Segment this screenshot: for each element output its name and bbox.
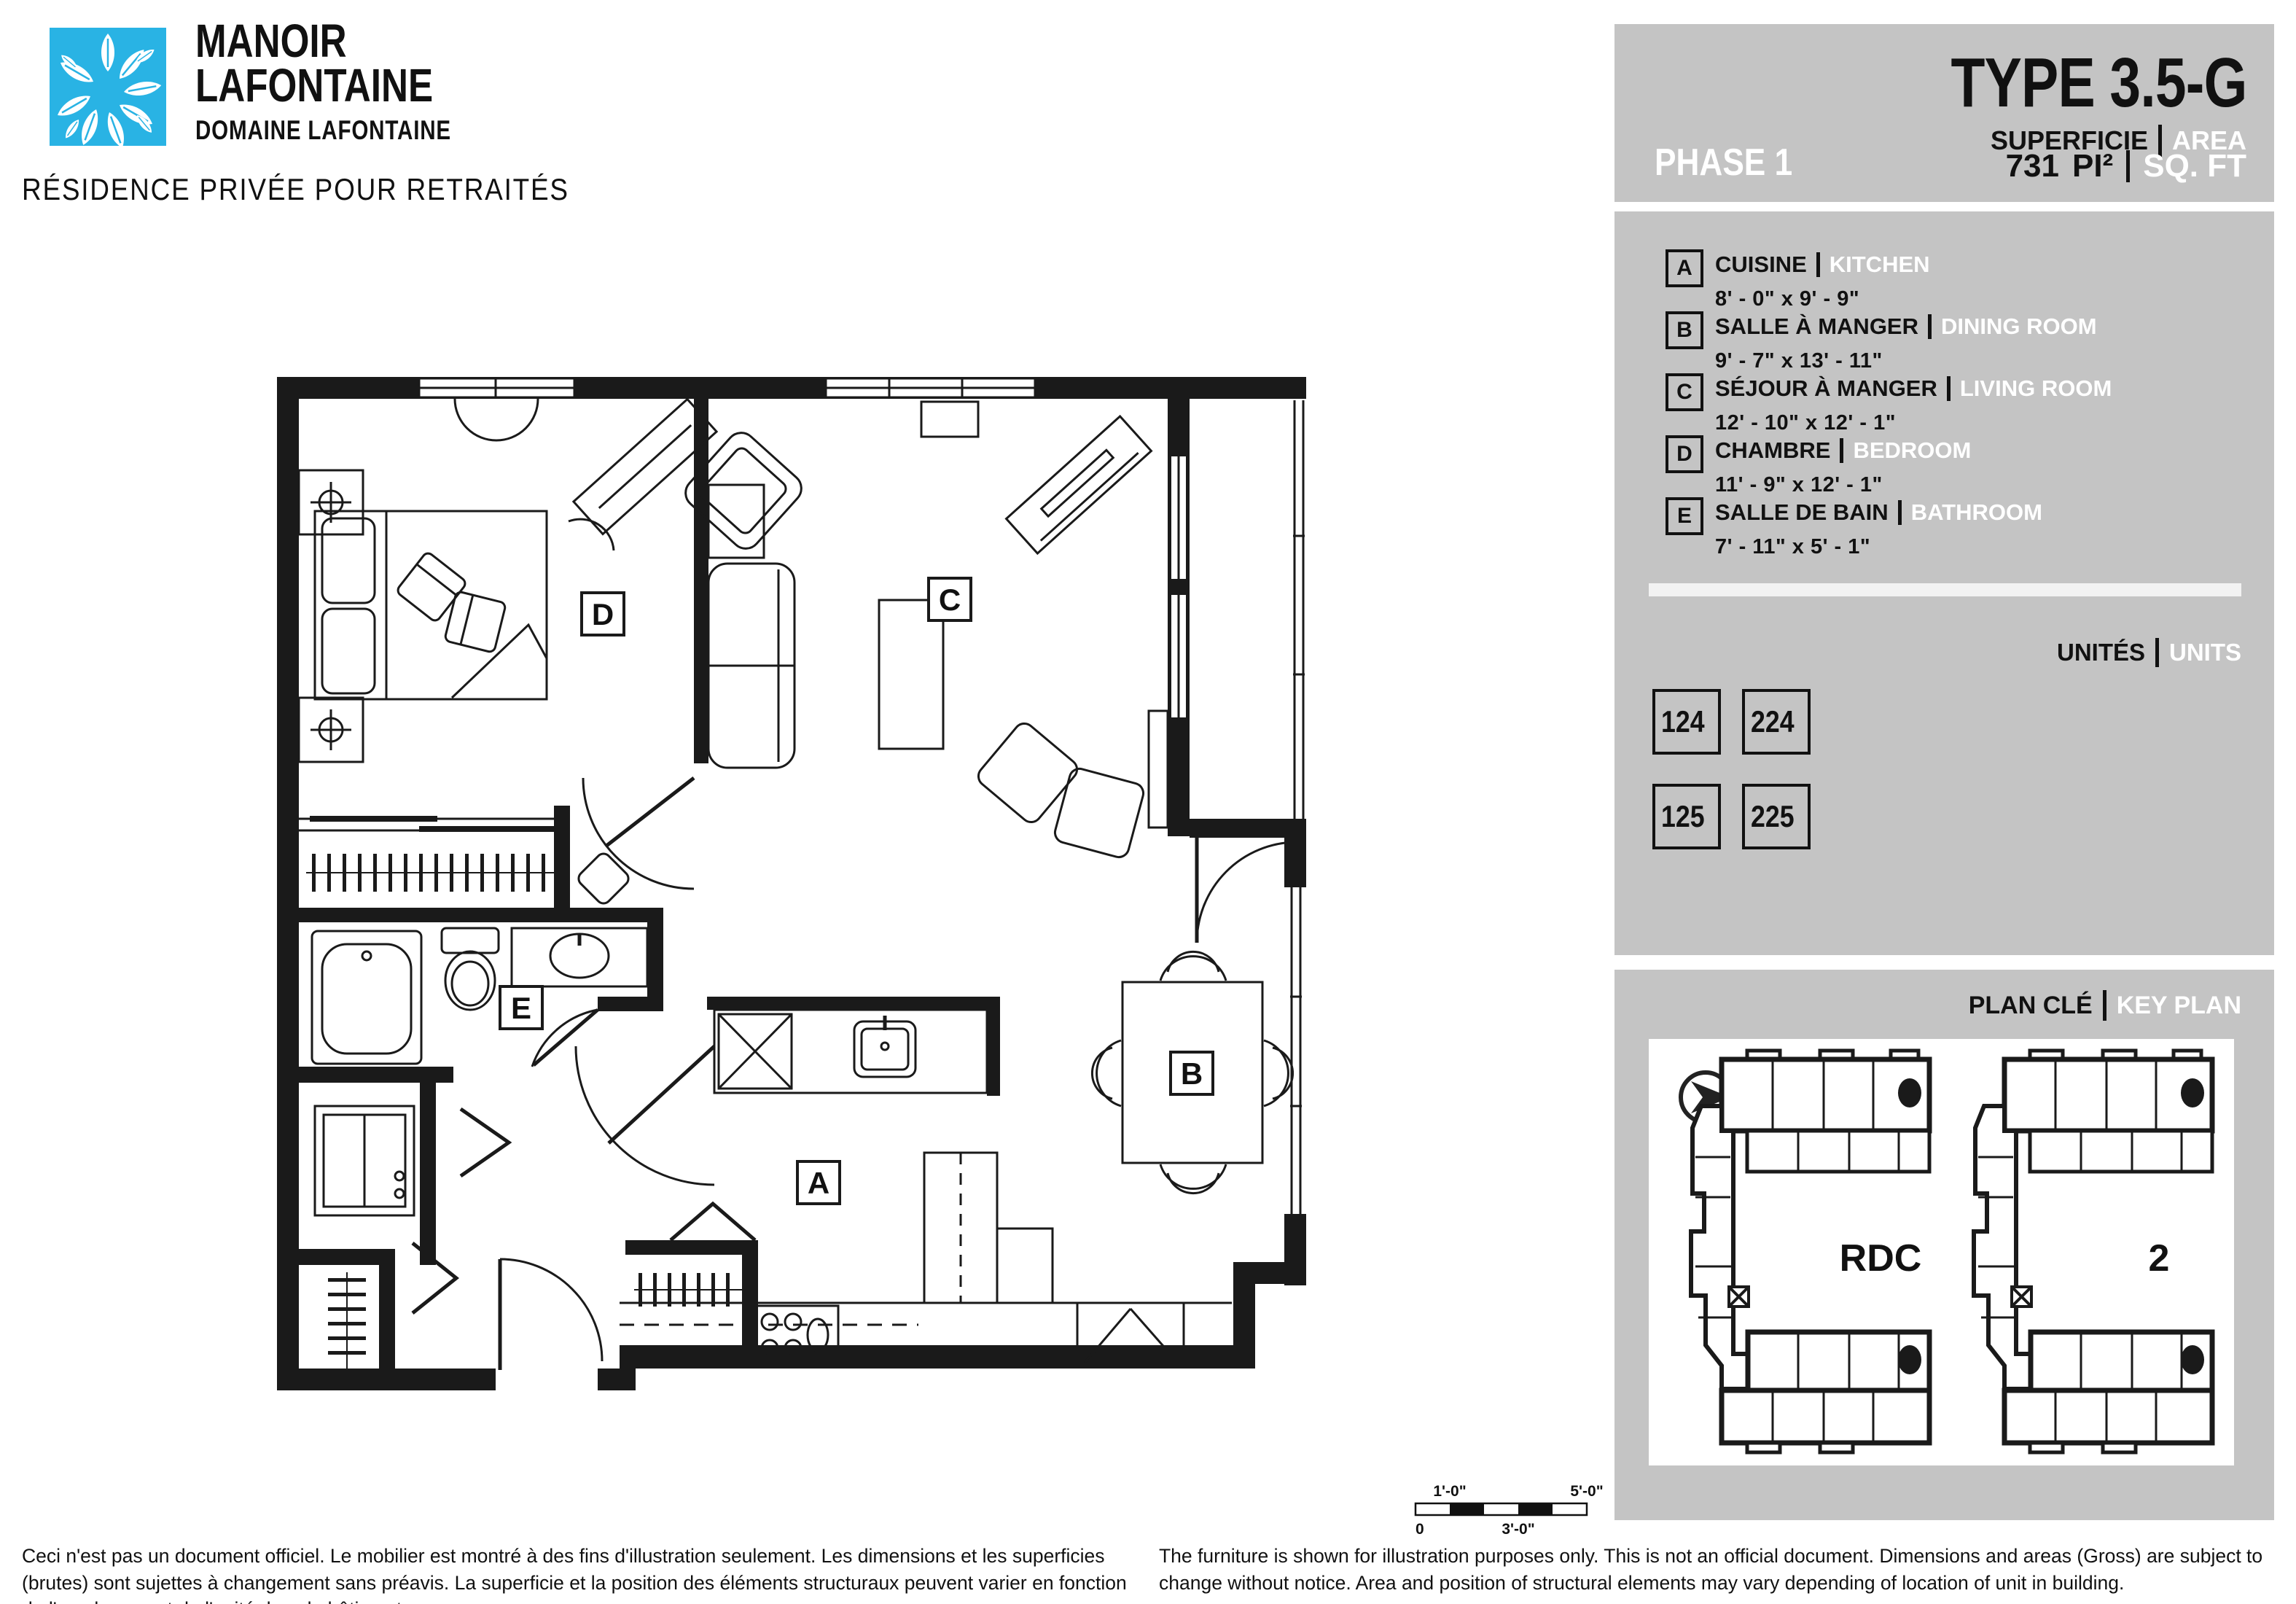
brand-tagline: RÉSIDENCE PRIVÉE POUR RETRAITÉS: [22, 172, 644, 207]
area-unit-en: SQ. FT: [2143, 148, 2246, 184]
panel-divider: [1649, 583, 2241, 596]
key-plan-inset: N RDC 2: [1649, 1039, 2234, 1465]
legend-name-b: SALLE À MANGER DINING ROOM: [1715, 314, 2097, 340]
area-value-row: 731 PI² SQ. FT: [2006, 148, 2246, 184]
brand-logo: [50, 28, 166, 146]
walls: [277, 377, 1306, 1390]
unit-type-panel: TYPE 3.5-G SUPERFICIE AREA PHASE 1 731 P…: [1614, 24, 2274, 202]
key-plan-building-2: [1974, 1051, 2212, 1452]
legend-name-d: CHAMBRE BEDROOM: [1715, 437, 1971, 464]
floor-plan-drawing: D C E A B: [277, 368, 1327, 1400]
disclaimer-fr: Ceci n'est pas un document officiel. Le …: [22, 1543, 1130, 1604]
unit-number-225: 225: [1742, 784, 1811, 849]
divider-bar-icon: [2126, 150, 2130, 182]
unit-number-124: 124: [1652, 689, 1721, 755]
unit-number-125: 125: [1652, 784, 1721, 849]
scale-label-5ft: 5'-0": [1570, 1483, 1603, 1500]
brand-name-line2: LAFONTAINE: [195, 63, 433, 108]
key-plan-floor-label-rdc: RDC: [1840, 1237, 1922, 1280]
legend-letter-c: C: [1666, 373, 1703, 411]
leaf-logo-icon: [50, 28, 166, 146]
room-label-e: E: [511, 991, 531, 1025]
legend-dims-b: 9' - 7" x 13' - 11": [1715, 349, 1883, 373]
area-unit-fr: PI²: [2072, 148, 2113, 184]
key-plan-panel: PLAN CLÉ KEY PLAN: [1614, 970, 2274, 1520]
scale-label-0: 0: [1416, 1521, 1424, 1538]
legend-name-e: SALLE DE BAIN BATHROOM: [1715, 499, 2042, 526]
legend-letter-d: D: [1666, 435, 1703, 473]
scale-label-3ft: 3'-0": [1502, 1521, 1534, 1538]
key-plan-drawing: N RDC 2: [1649, 1039, 2234, 1465]
key-plan-floor-label-2: 2: [2149, 1237, 2170, 1280]
legend-panel: A CUISINE KITCHEN 8' - 0" x 9' - 9" B SA…: [1614, 211, 2274, 955]
brand-name: MANOIR LAFONTAINE: [195, 19, 493, 108]
bedroom-furniture: [299, 399, 716, 762]
scale-bar-segments: [1416, 1503, 1587, 1515]
legend-letter-a: A: [1666, 249, 1703, 287]
legend-dims-d: 11' - 9" x 12' - 1": [1715, 473, 1883, 497]
room-label-c: C: [939, 583, 961, 617]
legend-name-c: SÉJOUR À MANGER LIVING ROOM: [1715, 375, 2112, 402]
legend-letter-b: B: [1666, 311, 1703, 349]
scale-bar: 1'-0" 5'-0" 0 3'-0": [1399, 1480, 1611, 1541]
legend-name-a: CUISINE KITCHEN: [1715, 252, 1930, 278]
phase-label: PHASE 1: [1655, 141, 1817, 184]
key-plan-heading: PLAN CLÉ KEY PLAN: [1969, 990, 2241, 1021]
scale-label-1ft: 1'-0": [1433, 1483, 1466, 1500]
living-room-furniture: [679, 402, 1168, 860]
kitchen-fixtures: [620, 1010, 1232, 1366]
legend-dims-a: 8' - 0" x 9' - 9": [1715, 287, 1859, 311]
unit-type-title: TYPE 3.5-G: [1877, 43, 2247, 123]
legend-dims-c: 12' - 10" x 12' - 1": [1715, 411, 1896, 435]
unit-number-224: 224: [1742, 689, 1811, 755]
closets: [299, 816, 755, 1369]
floorplan-sheet: MANOIR LAFONTAINE DOMAINE LAFONTAINE RÉS…: [0, 0, 2296, 1604]
legend-letter-e: E: [1666, 497, 1703, 535]
area-value: 731: [2006, 148, 2059, 184]
legend-dims-e: 7' - 11" x 5' - 1": [1715, 535, 1870, 559]
room-label-d: D: [592, 597, 614, 631]
units-heading: UNITÉS UNITS: [2057, 638, 2241, 667]
brand-name-line1: MANOIR: [195, 19, 347, 63]
brand-subtitle: DOMAINE LAFONTAINE: [195, 115, 515, 146]
room-labels: D C E A B: [500, 578, 1213, 1204]
room-label-b: B: [1181, 1056, 1203, 1091]
disclaimer-en: The furniture is shown for illustration …: [1159, 1543, 2281, 1596]
room-label-a: A: [808, 1166, 829, 1200]
